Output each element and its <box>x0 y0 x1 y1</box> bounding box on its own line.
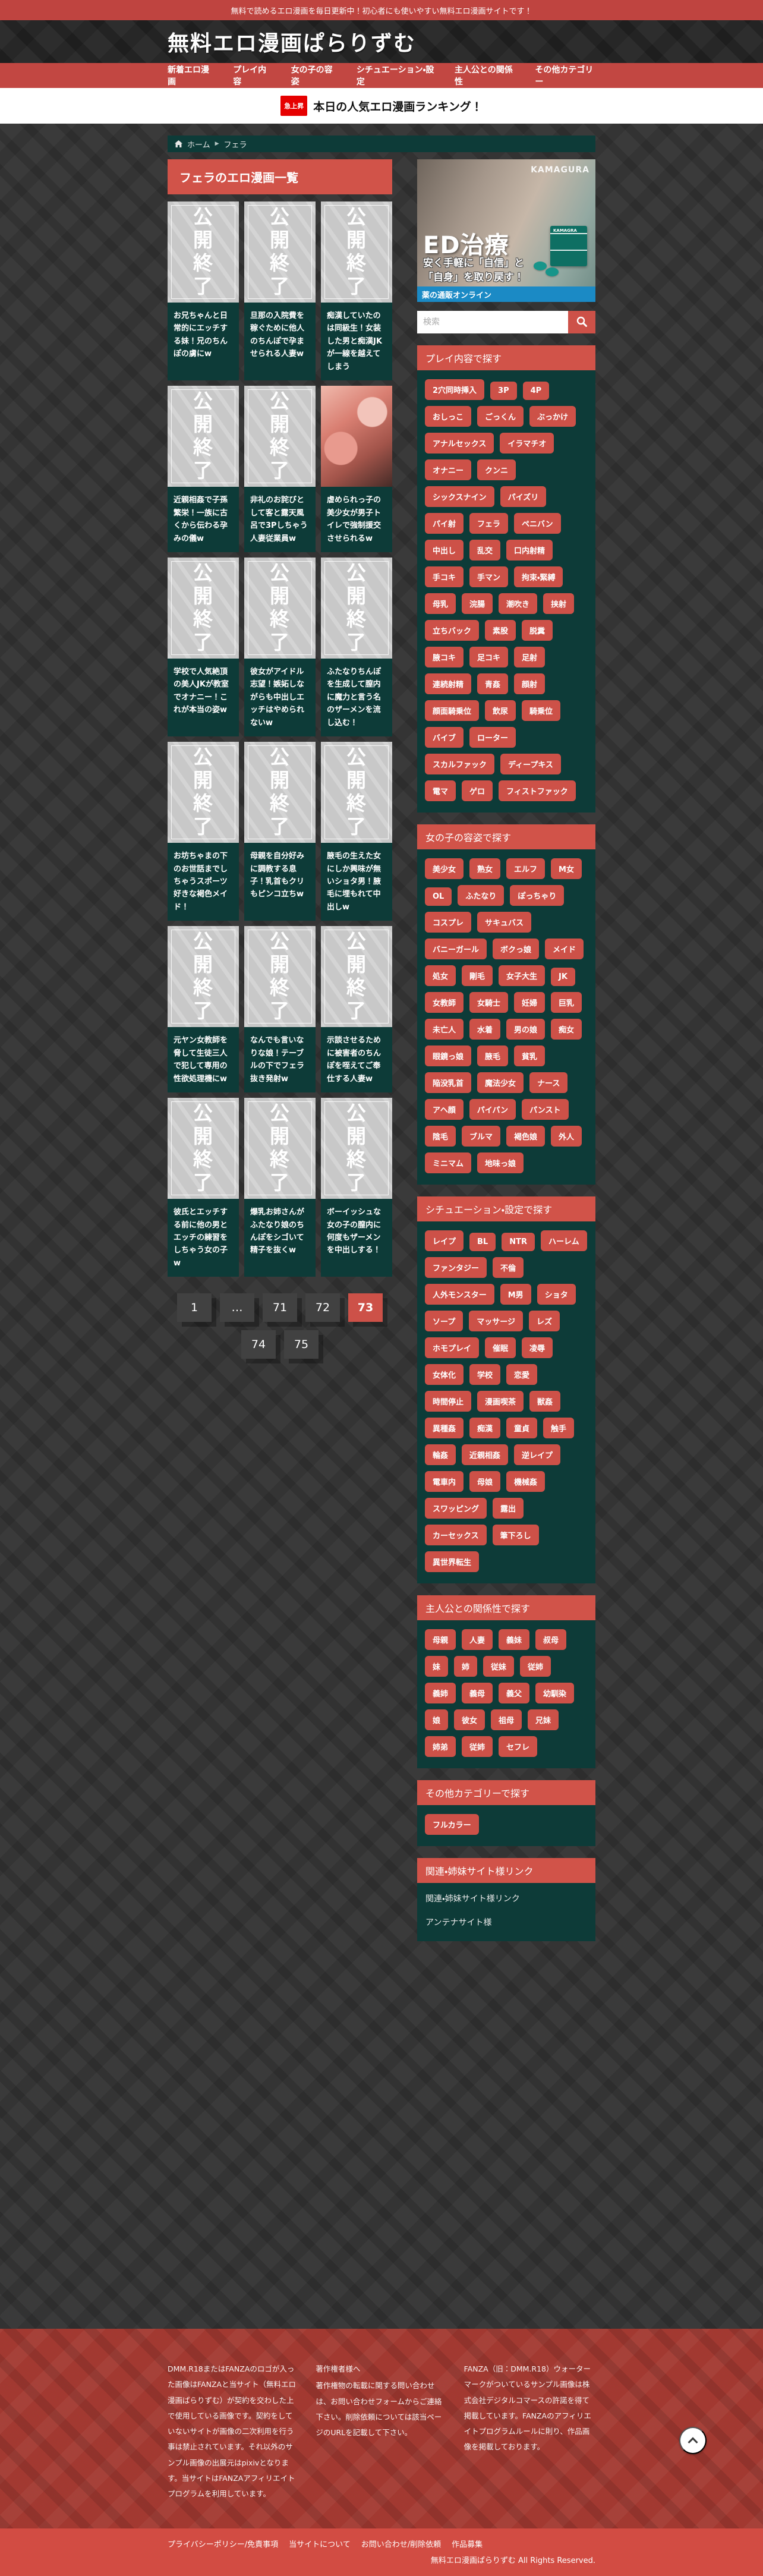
tag-section-title: シチュエーション・設定で探す <box>417 1196 595 1221</box>
tag-button[interactable]: アヘ顔 <box>425 1099 464 1120</box>
nav-item[interactable]: その他カテゴリー <box>535 65 593 87</box>
publication-ended-label: 公開終了 <box>260 1102 300 1195</box>
footer-link[interactable]: 当サイトについて <box>289 2540 351 2549</box>
manga-card-title[interactable]: お坊ちゃまの下のお世話までしちゃうスポーツ好きな褐色メイド！ <box>168 843 239 921</box>
tag-button[interactable]: ナース <box>529 1072 567 1093</box>
tag-button[interactable]: 脱糞 <box>522 620 553 641</box>
manga-card-title[interactable]: 虐められっ子の美少女が男子トイレで強制援交させられるw <box>321 487 392 552</box>
publication-ended-label: 公開終了 <box>183 930 223 1023</box>
tag-button[interactable]: 獣姦 <box>529 1391 560 1412</box>
tag-button[interactable]: バニーガール <box>425 939 487 959</box>
tag-button[interactable]: 人外モンスター <box>425 1284 494 1305</box>
tag-button[interactable]: 姉弟 <box>425 1736 456 1757</box>
manga-card[interactable]: 公開終了 彼氏とエッチする前に他の男とエッチの練習をしちゃう女の子w <box>168 1098 239 1277</box>
tag-button[interactable]: 幼馴染 <box>535 1683 574 1703</box>
home-icon <box>175 140 182 147</box>
manga-card-title[interactable]: お兄ちゃんと日常的にエッチする妹！兄のちんぽの虜にw <box>168 303 239 380</box>
tag-button[interactable]: 義妹 <box>499 1629 529 1650</box>
manga-thumbnail: 公開終了 <box>321 201 392 303</box>
tag-button[interactable]: 男の娘 <box>506 1019 545 1040</box>
manga-card-title[interactable]: 旦那の入院費を稼ぐために他人のちんぽで孕ませられる人妻w <box>244 303 316 380</box>
pagination-button[interactable]: 75 <box>284 1330 319 1359</box>
tag-button[interactable]: おしっこ <box>425 406 471 427</box>
tag-button[interactable]: 女体化 <box>425 1364 464 1385</box>
tag-button[interactable]: マッサージ <box>469 1311 523 1331</box>
footer-links: プライバシーポリシー/免責事項当サイトについてお問い合わせ/削除依頼作品募集 <box>168 2538 595 2549</box>
tag-button[interactable]: 義母 <box>462 1683 493 1703</box>
tag-button[interactable]: 義姉 <box>425 1683 456 1703</box>
tag-button[interactable]: 女騎士 <box>469 992 508 1013</box>
tag-button[interactable]: 凌辱 <box>522 1337 553 1358</box>
manga-card-title[interactable]: 爆乳お姉さんがふたなり娘のちんぽをシゴいて精子を抜くw <box>244 1199 316 1277</box>
publication-ended-label: 公開終了 <box>183 562 223 654</box>
tag-button[interactable]: ミニマム <box>425 1152 471 1173</box>
tag-button[interactable]: 機械姦 <box>506 1471 545 1492</box>
nav-item[interactable]: プレイ内容 <box>233 65 266 87</box>
manga-thumbnail: 公開終了 <box>244 201 316 303</box>
breadcrumb-separator-icon: ▶ <box>215 141 219 147</box>
pagination-button[interactable]: 1 <box>177 1293 212 1322</box>
tag-button[interactable]: フィストファック <box>499 780 576 801</box>
main-area: ホーム ▶ フェラ フェラのエロ漫画一覧 公開終了 お兄ちゃんと日常的にエッチす… <box>0 124 763 2329</box>
manga-card-title[interactable]: 近親相姦で子孫繁栄！一族に古くから伝わる孕みの儀w <box>168 487 239 552</box>
manga-thumbnail: 公開終了 <box>244 386 316 487</box>
search-icon <box>576 316 587 329</box>
tag-button[interactable]: 女子大生 <box>499 965 545 986</box>
manga-card-title[interactable]: ボーイッシュな女の子の膣内に何度もザーメンを中出しする！ <box>321 1199 392 1277</box>
tag-button[interactable]: 地味っ娘 <box>477 1152 524 1173</box>
tag-button[interactable]: レズ <box>529 1311 560 1331</box>
manga-card-title[interactable]: 非礼のお詫びとして客と露天風呂で3Pしちゃう人妻従業員w <box>244 487 316 552</box>
manga-thumbnail: 公開終了 <box>168 926 239 1027</box>
tag-button[interactable]: 電マ <box>425 780 456 801</box>
tag-button[interactable]: 姉 <box>454 1656 477 1677</box>
search-button[interactable] <box>568 311 595 333</box>
manga-card[interactable]: 公開終了 爆乳お姉さんがふたなり娘のちんぽをシゴいて精子を抜くw <box>244 1098 316 1277</box>
tag-button[interactable]: 妹 <box>425 1656 448 1677</box>
tag-button[interactable]: 異種姦 <box>425 1418 464 1438</box>
tag-button[interactable]: 処女 <box>425 965 456 986</box>
manga-card[interactable]: 公開終了 非礼のお詫びとして客と露天風呂で3Pしちゃう人妻従業員w <box>244 386 316 552</box>
nav-item[interactable]: シチュエーション・設定 <box>357 65 434 87</box>
tag-button[interactable]: アナルセックス <box>425 433 494 454</box>
tag-button[interactable]: 近親相姦 <box>462 1444 508 1465</box>
tag-button[interactable]: コスプレ <box>425 912 471 933</box>
manga-thumbnail: 公開終了 <box>244 558 316 659</box>
tag-button[interactable]: 乱交 <box>469 540 500 560</box>
tag-button[interactable]: レイプ <box>425 1230 464 1251</box>
manga-card[interactable]: 公開終了 母親を自分好みに調教する息子！乳首もクリもピンコ立ちw <box>244 742 316 921</box>
tag-button[interactable]: イラマチオ <box>500 433 554 454</box>
tag-button[interactable]: フェラ <box>469 513 508 534</box>
manga-thumbnail: 公開終了 <box>244 926 316 1027</box>
tag-button[interactable]: 浣腸 <box>462 593 493 614</box>
tag-button[interactable]: 催眠 <box>485 1337 516 1358</box>
tag-button[interactable]: M女 <box>551 858 582 879</box>
page-title: フェラのエロ漫画一覧 <box>168 159 392 194</box>
manga-thumbnail: 公開終了 <box>168 386 239 487</box>
tag-button[interactable]: 叔母 <box>535 1629 566 1650</box>
tag-button[interactable]: ホモプレイ <box>425 1337 479 1358</box>
tag-button[interactable]: 従姉 <box>462 1736 493 1757</box>
sidebar: KAMAGURA ED治療 安く手軽に「自信」と 「自身」を取り戻す！ KAMA… <box>417 159 595 1941</box>
tag-section-title: プレイ内容で探す <box>417 345 595 370</box>
tag-button[interactable]: 母親 <box>425 1629 456 1650</box>
footer-col-copyright-holders: 著作権者様へ 著作権物の転載に関する問い合わせは、お問い合わせフォームからご連絡… <box>316 2361 447 2502</box>
manga-thumbnail: 公開終了 <box>168 1098 239 1199</box>
manga-thumbnail: 公開終了 <box>168 742 239 843</box>
ad-footer-strip: 薬の通販オンライン <box>417 286 595 302</box>
tag-button[interactable]: 娘 <box>425 1709 448 1730</box>
tag-button[interactable]: 立ちバック <box>425 620 479 641</box>
manga-card[interactable]: 公開終了 なんでも言いなりな娘！テーブルの下でフェラ抜き発射w <box>244 926 316 1092</box>
trending-badge: 急上昇 <box>280 96 307 116</box>
manga-thumbnail: 公開終了 <box>168 201 239 303</box>
tag-button[interactable]: 触手 <box>543 1418 574 1438</box>
manga-card-title[interactable]: ふたなりちんぽを生成して膣内に魔力と言う名のザーメンを流し込む！ <box>321 659 392 736</box>
tag-button[interactable]: 筆下ろし <box>493 1525 539 1545</box>
tag-button[interactable]: 剛毛 <box>462 965 493 986</box>
tag-button[interactable]: 外人 <box>551 1126 582 1147</box>
tag-section-title: その他カテゴリーで探す <box>417 1780 595 1805</box>
manga-thumbnail: 公開終了 <box>321 558 392 659</box>
search-input[interactable] <box>417 311 568 333</box>
chevron-up-icon <box>688 2437 698 2447</box>
manga-card[interactable]: 公開終了 旦那の入院費を稼ぐために他人のちんぽで孕ませられる人妻w <box>244 201 316 380</box>
pagination: 1 … 71 72 73 74 75 <box>168 1293 392 1359</box>
manga-thumbnail: 公開終了 <box>321 742 392 843</box>
tag-button[interactable]: 足射 <box>514 647 545 667</box>
tag-button[interactable]: 魔法少女 <box>477 1072 524 1093</box>
tag-button[interactable]: ディープキス <box>500 754 561 774</box>
tag-button[interactable]: 口内射精 <box>506 540 553 560</box>
tag-button[interactable]: OL <box>425 887 452 906</box>
footer-col-license: DMM.R18またはFANZAのロゴが入った画像はFANZAと当サイト（無料エロ… <box>168 2361 299 2502</box>
manga-card-title[interactable]: 示談させるために被害者のちんぽを咥えてご奉仕する人妻w <box>321 1027 392 1092</box>
manga-card[interactable]: 公開終了 痴漢していたのは同級生！女装した男と痴漢JKが一線を越えてしまう <box>321 201 392 380</box>
publication-ended-label: 公開終了 <box>336 562 377 654</box>
pagination-button[interactable]: 72 <box>305 1293 340 1322</box>
publication-ended-label: 公開終了 <box>336 746 377 839</box>
tag-button[interactable]: 4P <box>523 382 550 400</box>
manga-thumbnail: 公開終了 <box>244 742 316 843</box>
tag-button[interactable]: ブルマ <box>462 1126 500 1147</box>
tag-button[interactable]: 陥没乳首 <box>425 1072 471 1093</box>
manga-card[interactable]: 公開終了 彼女がアイドル志望！嫉妬しながらも中出しエッチはやめられないw <box>244 558 316 736</box>
copyright-text: 無料エロ漫画ぱらりずむ All Rights Reserved. <box>168 2554 595 2565</box>
manga-card[interactable]: 公開終了 学校で人気絶頂の美人JKが教室でオナニー！これが本当の姿w <box>168 558 239 736</box>
tag-button[interactable]: 童貞 <box>506 1418 537 1438</box>
footer-link[interactable]: 作品募集 <box>452 2540 483 2549</box>
tag-button[interactable]: 連続射精 <box>425 673 471 694</box>
tag-button[interactable]: パイ射 <box>425 513 464 534</box>
tag-button[interactable]: 従妹 <box>483 1656 514 1677</box>
site-title[interactable]: 無料エロ漫画ぱらりずむ <box>168 26 595 57</box>
tag-button[interactable]: クンニ <box>477 459 516 480</box>
tag-button[interactable]: メイド <box>545 939 584 959</box>
publication-ended-label: 公開終了 <box>336 206 377 298</box>
tag-button[interactable]: JK <box>551 968 575 986</box>
breadcrumb-home-link[interactable]: ホーム <box>187 138 210 150</box>
tag-button[interactable]: スワッピング <box>425 1498 487 1519</box>
tag-button[interactable]: 青姦 <box>477 673 508 694</box>
nav-item[interactable]: 主人公との関係性 <box>455 65 513 87</box>
manga-card[interactable]: 公開終了 虐められっ子の美少女が男子トイレで強制援交させられるw <box>321 386 392 552</box>
ad-subline-2: 「自身」を取り戻す！ <box>423 269 524 284</box>
tag-button[interactable]: ファンタジー <box>425 1257 487 1278</box>
tag-button[interactable]: 陰毛 <box>425 1126 456 1147</box>
tag-button[interactable]: 騎乗位 <box>522 700 560 721</box>
tag-button[interactable]: セフレ <box>499 1736 537 1757</box>
manga-card[interactable]: 公開終了 お坊ちゃまの下のお世話までしちゃうスポーツ好きな褐色メイド！ <box>168 742 239 921</box>
publication-ended-label: 公開終了 <box>260 390 300 483</box>
tag-button[interactable]: 腋毛 <box>477 1045 508 1066</box>
tag-button[interactable]: 素股 <box>485 620 516 641</box>
site-header: 無料エロ漫画ぱらりずむ <box>0 20 763 63</box>
publication-ended-label: 公開終了 <box>336 930 377 1023</box>
tag-button[interactable]: BL <box>469 1233 496 1251</box>
manga-card-title[interactable]: 彼女がアイドル志望！嫉妬しながらも中出しエッチはやめられないw <box>244 659 316 736</box>
pagination-button[interactable]: 71 <box>263 1293 297 1322</box>
tag-button[interactable]: カーセックス <box>425 1525 487 1545</box>
tag-section-situation: シチュエーション・設定で探す レイプBLNTRハーレムファンタジー不倫人外モンス… <box>417 1196 595 1583</box>
tag-section-play: プレイ内容で探す 2穴同時挿入3P4Pおしっこごっくんぶっかけアナルセックスイラ… <box>417 345 595 813</box>
pagination-button[interactable]: 74 <box>241 1330 276 1359</box>
tag-button[interactable]: 水着 <box>469 1019 500 1040</box>
manga-card[interactable]: 公開終了 示談させるために被害者のちんぽを咥えてご奉仕する人妻w <box>321 926 392 1092</box>
tag-button[interactable]: 母乳 <box>425 593 456 614</box>
tag-button[interactable]: ハーレム <box>541 1230 587 1251</box>
tag-button[interactable]: 3P <box>490 382 517 400</box>
announcement-bar: 無料で読めるエロ漫画を毎日更新中！初心者にも使いやすい無料エロ漫画サイトです！ <box>0 0 763 20</box>
breadcrumb-current: フェラ <box>224 138 247 150</box>
related-site-link[interactable]: 関連・姉妹サイト様リンク <box>417 1887 595 1910</box>
tag-button[interactable]: 褐色娘 <box>506 1126 545 1147</box>
tag-button[interactable]: パイパン <box>469 1099 516 1120</box>
tag-button[interactable]: バイブ <box>425 727 464 748</box>
main-nav: 新着エロ漫画 プレイ内容 女の子の容姿 シチュエーション・設定 主人公との関係性… <box>0 63 763 88</box>
tag-button[interactable]: ぽっちゃり <box>510 885 564 906</box>
tag-button[interactable]: 痴女 <box>551 1019 582 1040</box>
tag-section-appearance: 女の子の容姿で探す 美少女熟女エルフM女OLふたなりぽっちゃりコスプレサキュバス… <box>417 824 595 1185</box>
tag-button[interactable]: 腋コキ <box>425 647 464 667</box>
tag-button[interactable]: フルカラー <box>425 1814 479 1835</box>
publication-ended-label: 公開終了 <box>183 746 223 839</box>
tag-button[interactable]: 潮吹き <box>499 593 537 614</box>
tag-button[interactable]: 輪姦 <box>425 1444 456 1465</box>
tag-button[interactable]: 彼女 <box>454 1709 485 1730</box>
manga-card-title[interactable]: 学校で人気絶頂の美人JKが教室でオナニー！これが本当の姿w <box>168 659 239 736</box>
tag-button[interactable]: オナニー <box>425 459 471 480</box>
tag-button[interactable]: シックスナイン <box>425 486 494 507</box>
footer-col-fanza: FANZA（旧：DMM.R18）ウォーターマークがついているサンプル画像は株式会… <box>464 2361 595 2502</box>
tag-button[interactable]: 顔面騎乗位 <box>425 700 479 721</box>
pagination-button[interactable]: … <box>220 1293 254 1322</box>
publication-ended-label: 公開終了 <box>260 562 300 654</box>
tag-button[interactable]: 妊婦 <box>514 992 545 1013</box>
manga-card-title[interactable]: なんでも言いなりな娘！テーブルの下でフェラ抜き発射w <box>244 1027 316 1092</box>
manga-card[interactable]: 公開終了 元ヤン女教師を脅して生徒三人で犯して専用の性欲処理機にw <box>168 926 239 1092</box>
tag-button[interactable]: NTR <box>502 1233 535 1251</box>
tag-button[interactable]: パイズリ <box>500 486 547 507</box>
tag-button[interactable]: 挟射 <box>543 593 574 614</box>
footer-link[interactable]: お問い合わせ/削除依頼 <box>361 2540 441 2549</box>
tag-button[interactable]: ショタ <box>537 1284 576 1305</box>
tag-button[interactable]: 人妻 <box>462 1629 493 1650</box>
tag-button[interactable]: サキュバス <box>477 912 531 933</box>
tag-button[interactable]: 漫画喫茶 <box>477 1391 524 1412</box>
tag-section-other: その他カテゴリーで探す フルカラー <box>417 1780 595 1846</box>
manga-card[interactable]: 公開終了 ボーイッシュな女の子の膣内に何度もザーメンを中出しする！ <box>321 1098 392 1277</box>
related-site-link[interactable]: アンテナサイト様 <box>417 1910 595 1934</box>
ad-watermark-text: KAMAGURA <box>531 165 589 175</box>
tag-button[interactable]: 熟女 <box>469 858 500 879</box>
nav-menu: 新着エロ漫画 プレイ内容 女の子の容姿 シチュエーション・設定 主人公との関係性… <box>168 64 595 87</box>
manga-card-grid: 公開終了 お兄ちゃんと日常的にエッチする妹！兄のちんぽの虜にw 公開終了 旦那の… <box>168 201 392 1277</box>
ranking-banner[interactable]: 急上昇 本日の人気エロ漫画ランキング！ <box>0 88 763 124</box>
manga-card[interactable]: 公開終了 近親相姦で子孫繁栄！一族に古くから伝わる孕みの儀w <box>168 386 239 552</box>
tag-button[interactable]: 義父 <box>499 1683 529 1703</box>
tag-button[interactable]: 2穴同時挿入 <box>425 379 484 400</box>
tag-button[interactable]: 美少女 <box>425 858 464 879</box>
tag-button[interactable]: 露出 <box>493 1498 524 1519</box>
manga-card[interactable]: 公開終了 お兄ちゃんと日常的にエッチする妹！兄のちんぽの虜にw <box>168 201 239 380</box>
publication-ended-label: 公開終了 <box>183 390 223 483</box>
ad-subline-1: 安く手軽に「自信」と <box>423 254 524 269</box>
tag-button[interactable]: 未亡人 <box>425 1019 464 1040</box>
tag-button[interactable]: 母娘 <box>469 1471 500 1492</box>
tag-button[interactable]: 従姉 <box>520 1656 551 1677</box>
publication-ended-label: 公開終了 <box>260 746 300 839</box>
nav-item[interactable]: 新着エロ漫画 <box>168 65 209 87</box>
tag-button[interactable]: スカルファック <box>425 754 494 774</box>
tag-button[interactable]: 痴漢 <box>469 1418 500 1438</box>
tag-button[interactable]: エルフ <box>506 858 545 879</box>
tag-button[interactable]: ソープ <box>425 1311 463 1331</box>
tag-button[interactable]: 女教師 <box>425 992 464 1013</box>
manga-card-title[interactable]: 彼氏とエッチする前に他の男とエッチの練習をしちゃう女の子w <box>168 1199 239 1277</box>
tag-button[interactable]: 学校 <box>469 1364 500 1385</box>
tag-button[interactable]: 逆レイプ <box>514 1444 560 1465</box>
related-links-section: 関連・姉妹サイト様リンク 関連・姉妹サイト様リンクアンテナサイト様 <box>417 1858 595 1941</box>
tag-button[interactable]: ごっくん <box>477 406 524 427</box>
tag-button[interactable]: 手マン <box>469 566 508 587</box>
site-footer: DMM.R18またはFANZAのロゴが入った画像はFANZAと当サイト（無料エロ… <box>0 2329 763 2576</box>
tag-button[interactable]: 貧乳 <box>514 1045 545 1066</box>
manga-thumbnail: 公開終了 <box>321 1098 392 1199</box>
tag-button[interactable]: 顔射 <box>514 673 545 694</box>
nav-item[interactable]: 女の子の容姿 <box>291 65 333 87</box>
search-bar <box>417 311 595 333</box>
back-to-top-button[interactable] <box>679 2427 707 2454</box>
manga-thumbnail: 公開終了 <box>244 1098 316 1199</box>
content-column: フェラのエロ漫画一覧 公開終了 お兄ちゃんと日常的にエッチする妹！兄のちんぽの虜… <box>168 159 392 1359</box>
tag-button[interactable]: パンスト <box>522 1099 568 1120</box>
tag-button[interactable]: 眼鏡っ娘 <box>425 1045 471 1066</box>
ad-pill-icon <box>546 267 559 276</box>
tag-button[interactable]: ふたなり <box>458 885 504 906</box>
tag-section-title: 主人公との関係性で探す <box>417 1595 595 1620</box>
manga-thumbnail: 公開終了 <box>321 926 392 1027</box>
tag-button[interactable]: 電車内 <box>425 1471 464 1492</box>
manga-card-title[interactable]: 腋毛の生えた女にしか興味が無いショタ男！腋毛に埋もれて中出しw <box>321 843 392 921</box>
manga-thumbnail: 公開終了 <box>321 386 392 487</box>
tag-button[interactable]: 恋愛 <box>506 1364 537 1385</box>
publication-ended-label: 公開終了 <box>260 930 300 1023</box>
related-links-title: 関連・姉妹サイト様リンク <box>417 1858 595 1883</box>
footer-link[interactable]: プライバシーポリシー/免責事項 <box>168 2540 278 2549</box>
publication-ended-label: 公開終了 <box>183 1102 223 1195</box>
tag-button[interactable]: 祖母 <box>491 1709 522 1730</box>
tag-button[interactable]: 不倫 <box>493 1257 524 1278</box>
publication-ended-label: 公開終了 <box>260 206 300 298</box>
tag-button[interactable]: ローター <box>469 727 516 748</box>
footer-info: DMM.R18またはFANZAのロゴが入った画像はFANZAと当サイト（無料エロ… <box>0 2329 763 2528</box>
publication-ended-label: 公開終了 <box>183 206 223 298</box>
tag-button[interactable]: 異世界転生 <box>425 1551 479 1572</box>
tag-button[interactable]: ボクっ娘 <box>493 939 539 959</box>
pagination-button[interactable]: 73 <box>348 1293 383 1322</box>
tag-button[interactable]: ゲロ <box>462 780 493 801</box>
manga-card-title[interactable]: 母親を自分好みに調教する息子！乳首もクリもピンコ立ちw <box>244 843 316 921</box>
ad-banner[interactable]: KAMAGURA ED治療 安く手軽に「自信」と 「自身」を取り戻す！ KAMA… <box>417 159 595 302</box>
footer-col-heading: 著作権者様へ <box>316 2361 447 2377</box>
manga-thumbnail: 公開終了 <box>168 558 239 659</box>
tag-button[interactable]: 手コキ <box>425 566 464 587</box>
manga-card[interactable]: 公開終了 ふたなりちんぽを生成して膣内に魔力と言う名のザーメンを流し込む！ <box>321 558 392 736</box>
tag-button[interactable]: 兄妹 <box>528 1709 559 1730</box>
manga-card-title[interactable]: 元ヤン女教師を脅して生徒三人で犯して専用の性欲処理機にw <box>168 1027 239 1092</box>
breadcrumb: ホーム ▶ フェラ <box>168 136 595 152</box>
tag-button[interactable]: ぶっかけ <box>529 406 576 427</box>
tag-button[interactable]: 時間停止 <box>425 1391 471 1412</box>
manga-card-title[interactable]: 痴漢していたのは同級生！女装した男と痴漢JKが一線を越えてしまう <box>321 303 392 380</box>
manga-card[interactable]: 公開終了 腋毛の生えた女にしか興味が無いショタ男！腋毛に埋もれて中出しw <box>321 742 392 921</box>
tag-button[interactable]: M男 <box>500 1284 531 1305</box>
publication-ended-label: 公開終了 <box>336 1102 377 1195</box>
tag-button[interactable]: 飲尿 <box>485 700 516 721</box>
ranking-link-text[interactable]: 本日の人気エロ漫画ランキング！ <box>313 98 482 114</box>
ad-pill-icon <box>534 262 547 270</box>
tag-button[interactable]: 中出し <box>425 540 464 560</box>
announcement-text: 無料で読めるエロ漫画を毎日更新中！初心者にも使いやすい無料エロ漫画サイトです！ <box>231 5 532 16</box>
tag-button[interactable]: 足コキ <box>469 647 508 667</box>
tag-button[interactable]: 巨乳 <box>551 992 582 1013</box>
tag-section-title: 女の子の容姿で探す <box>417 824 595 849</box>
tag-button[interactable]: ペニバン <box>514 513 561 534</box>
ad-product-box: KAMAGRA <box>550 226 587 266</box>
tag-section-relationship: 主人公との関係性で探す 母親人妻義妹叔母妹姉従妹従姉義姉義母義父幼馴染娘彼女祖母… <box>417 1595 595 1768</box>
tag-button[interactable]: 拘束・緊縛 <box>514 566 563 587</box>
footer-bottom: プライバシーポリシー/免責事項当サイトについてお問い合わせ/削除依頼作品募集 無… <box>0 2528 763 2576</box>
